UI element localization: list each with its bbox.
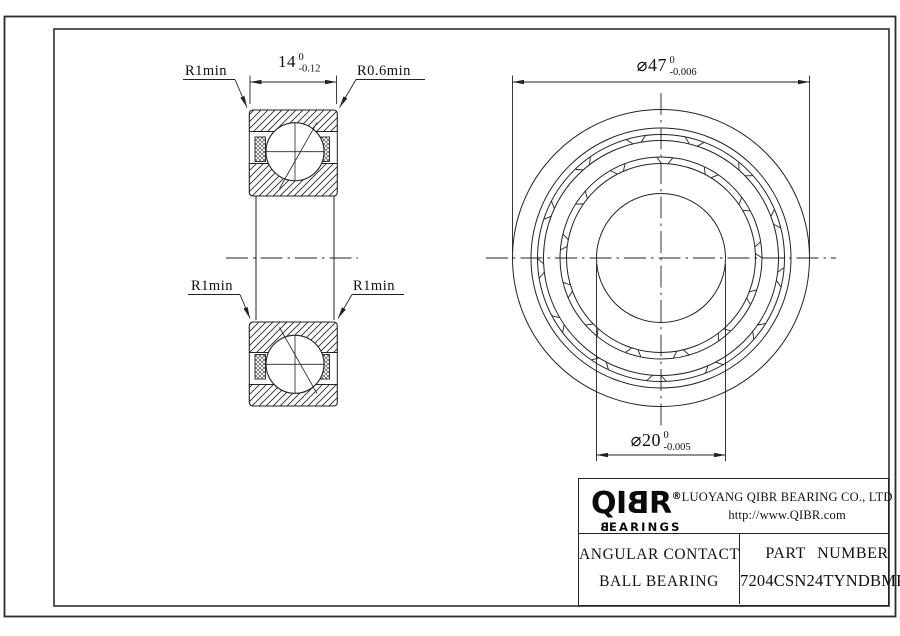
front-view: ⌀47 0 -0.006 ⌀20 0 -0.005 xyxy=(486,55,836,461)
part-number-cell: PART NUMBER 7204CSN24TYNDBMP4 xyxy=(739,534,900,604)
top-section xyxy=(249,110,337,196)
width-tol-lower: -0.12 xyxy=(299,64,321,75)
width-value: 14 xyxy=(278,52,296,71)
label-r1min-mid-left: R1min xyxy=(191,278,233,294)
part-number-label: PART NUMBER xyxy=(740,541,900,567)
registered-trademark-icon: ® xyxy=(672,491,682,502)
title-block: QIBR® BEARINGS LUOYANG QIBR BEARING CO.,… xyxy=(578,478,889,606)
dimension-width: 14 0 -0.12 xyxy=(250,52,337,104)
logo-text: R xyxy=(649,486,672,521)
bore-tol-lower: -0.005 xyxy=(664,442,691,453)
dimension-outer-diameter: ⌀47 0 -0.006 xyxy=(513,55,810,252)
logo-bearings-text: BEARINGS xyxy=(598,520,682,534)
logo-mirrored-b: B xyxy=(627,489,649,519)
company-name: LUOYANG QIBR BEARING CO., LTD xyxy=(682,488,893,506)
cage-section-left xyxy=(255,137,266,162)
width-tol-upper: 0 xyxy=(299,52,304,63)
cage-section-left xyxy=(255,355,266,380)
title-block-lower-row: ANGULAR CONTACT BALL BEARING PART NUMBER… xyxy=(579,533,888,604)
od-value: ⌀47 xyxy=(637,55,667,75)
bore-tol-upper: 0 xyxy=(664,430,669,441)
product-line2: BALL BEARING xyxy=(579,568,739,595)
company-info: LUOYANG QIBR BEARING CO., LTD http://www… xyxy=(682,479,893,533)
od-tol-upper: 0 xyxy=(670,55,675,66)
drawing-page: 14 0 -0.12 R1min R0.6min R1min R1min xyxy=(0,0,900,636)
bottom-section xyxy=(249,322,337,406)
logo-mirrored-b: B xyxy=(598,520,609,534)
title-block-header-row: QIBR® BEARINGS LUOYANG QIBR BEARING CO.,… xyxy=(579,479,888,533)
logo-text: QI xyxy=(591,486,627,521)
logo-wordmark: QIBR® xyxy=(591,482,682,519)
od-tol-lower: -0.006 xyxy=(670,67,697,78)
bore-value: ⌀20 xyxy=(631,430,661,450)
label-r1min-mid-right: R1min xyxy=(353,278,395,294)
qibr-logo: QIBR® BEARINGS xyxy=(579,479,682,533)
product-line1: ANGULAR CONTACT xyxy=(579,541,739,568)
logo-text: EARINGS xyxy=(609,520,682,534)
label-r1min-top: R1min xyxy=(185,63,227,79)
part-number-value: 7204CSN24TYNDBMP4 xyxy=(740,567,900,594)
side-section-view: 14 0 -0.12 R1min R0.6min R1min R1min xyxy=(183,52,425,406)
company-url: http://www.QIBR.com xyxy=(682,506,893,524)
product-type-cell: ANGULAR CONTACT BALL BEARING xyxy=(579,534,739,604)
label-r06min-top: R0.6min xyxy=(357,63,411,79)
